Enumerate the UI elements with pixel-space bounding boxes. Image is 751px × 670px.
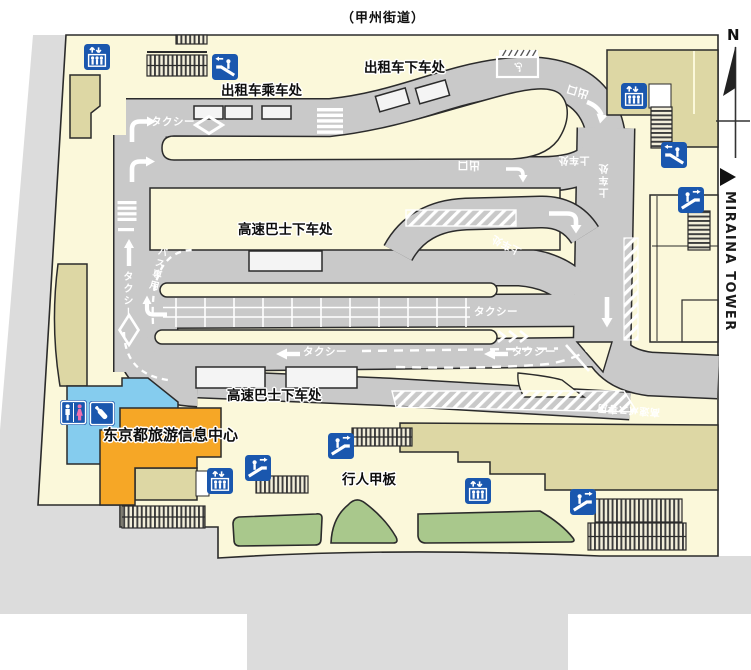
- escalator-icon: [245, 455, 271, 481]
- escalator-icon: [570, 489, 596, 515]
- escalator-icon: [328, 433, 354, 459]
- bus-lane-road-text: バス専用: [147, 246, 167, 293]
- boarding-v-road-text: 上车处: [601, 162, 611, 198]
- exit-inner-road-text: 出口: [457, 160, 480, 171]
- label-overlay: （甲州街道） N MIRAINA TOWER 出租车下车处出租车乘车处高速巴士下…: [0, 0, 751, 670]
- taxi-mid-road-text: タクシー: [474, 307, 518, 318]
- info-center-label: 东京都旅游信息中心: [103, 428, 238, 443]
- toilet-icon: [60, 400, 87, 425]
- elevator-icon: [84, 44, 110, 70]
- taxi-left-vert-road-text: タクシー: [121, 271, 131, 319]
- miraina-tower-label: MIRAINA TOWER: [722, 191, 737, 332]
- elevator-icon: [207, 468, 233, 494]
- taxi-dropoff-label: 出租车下车处: [364, 62, 445, 76]
- taxi-top-road-text: タクシー: [151, 117, 195, 128]
- bus-dropoff-bottom-label: 高速巴士下车处: [227, 390, 322, 404]
- exit-curve-road-text: 出口: [565, 83, 590, 100]
- street-title: （甲州街道）: [341, 7, 425, 26]
- escalator-icon: [678, 187, 704, 213]
- taxi-pickup-label: 出租车乘车处: [221, 85, 302, 99]
- compass-north-label: N: [727, 26, 740, 44]
- bus-dropoff-top-label: 高速巴士下车处: [238, 224, 333, 238]
- boarding-diag-road-text: 上车处: [490, 232, 523, 255]
- nursing-icon: [89, 401, 115, 426]
- elevator-icon: [621, 83, 647, 109]
- boarding-h-road-text: 上车处: [558, 154, 590, 164]
- escalator-icon: [661, 142, 687, 168]
- pedestrian-deck-label: 行人甲板: [342, 474, 396, 488]
- escalator-icon: [212, 54, 238, 80]
- terminal-map: ♿: [0, 0, 751, 670]
- bus-only-exit-road-text: 高速バス専用: [597, 402, 661, 416]
- elevator-icon: [465, 478, 491, 504]
- miraina-pointer-icon: [720, 168, 736, 186]
- taxi-west-2-road-text: タクシー: [512, 347, 556, 358]
- taxi-west-1-road-text: タクシー: [303, 347, 347, 358]
